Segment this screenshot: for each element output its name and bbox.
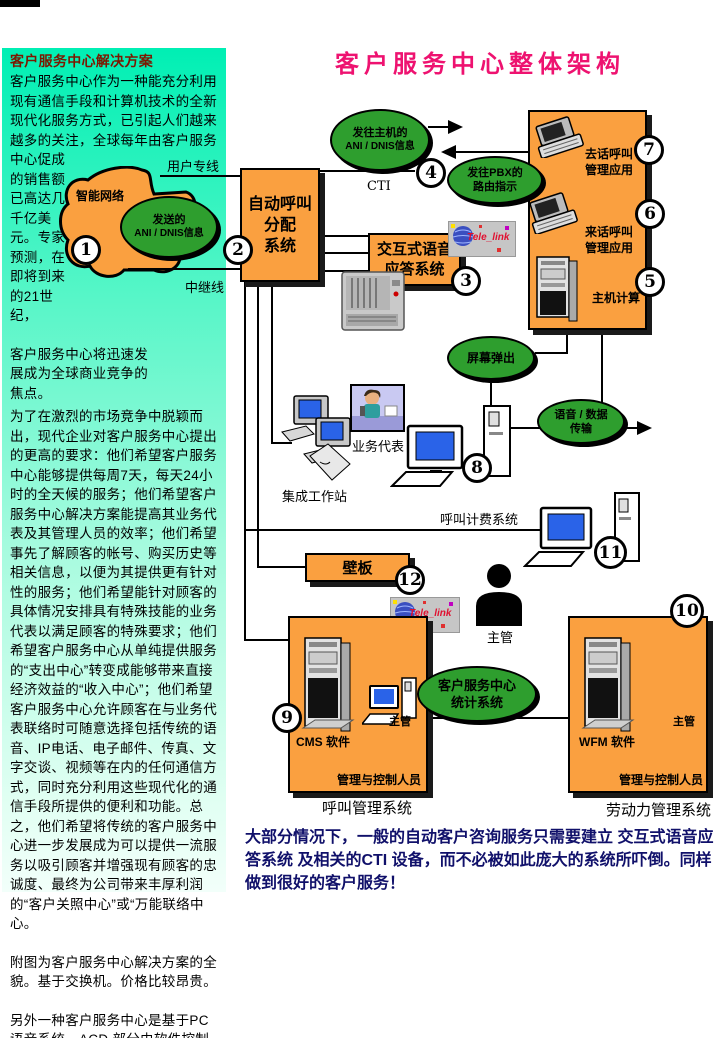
step-circle-2: 2 bbox=[223, 235, 253, 265]
voice-data-oval: 语音 / 数据 传输 bbox=[537, 399, 625, 444]
acd-line3: 系统 bbox=[248, 236, 312, 257]
to-pbx-oval: 发往PBX的 路由指示 bbox=[447, 156, 543, 204]
step-circle-11: 11 bbox=[594, 536, 627, 569]
supervisor-silhouette bbox=[472, 562, 526, 626]
wfm-staff-label: 管理与控制人员 bbox=[619, 772, 703, 788]
step-circle-10: 10 bbox=[670, 594, 704, 628]
step-circle-4: 4 bbox=[416, 158, 446, 188]
arrow-voice-data bbox=[637, 421, 652, 435]
step-circle-5: 5 bbox=[635, 267, 665, 297]
send-ani-oval: 发送的 ANI / DNIS信息 bbox=[120, 196, 218, 258]
sidebar-paragraph-2: 为了在激烈的市场竞争中脱颖而出，现代企业对客户服务中心提出的更高的要求：他们希望… bbox=[10, 407, 218, 934]
sidebar-paragraph-1-cont: 客户服务中心将迅速发展成为全球商业竞争的焦点。 bbox=[10, 345, 160, 404]
step-circle-7: 7 bbox=[634, 135, 664, 165]
cms-software-label: CMS 软件 bbox=[296, 734, 350, 750]
acd-line1: 自动呼叫 bbox=[248, 194, 312, 215]
corner-mark bbox=[0, 0, 40, 7]
to-host-oval: 发往主机的 ANI / DNIS信息 bbox=[330, 109, 430, 171]
ivr-line1: 交互式语音 bbox=[377, 240, 452, 260]
sidebar-heading: 客户服务中心解决方案 bbox=[10, 52, 218, 70]
step-circle-12: 12 bbox=[395, 565, 425, 595]
acd-box: 自动呼叫 分配 系统 bbox=[240, 168, 320, 282]
acd-line2: 分配 bbox=[248, 215, 312, 236]
step-circle-1: 1 bbox=[71, 235, 101, 265]
cms-caption: 呼叫管理系统 bbox=[322, 797, 412, 818]
step-circle-6: 6 bbox=[635, 199, 665, 229]
cti-label: CTI bbox=[367, 179, 391, 194]
cms-supervisor-label: 主管 bbox=[389, 714, 411, 730]
slide: 客户服务中心解决方案 客户服务中心作为一种能充分利用现有通信手段和计算机技术的全… bbox=[0, 0, 719, 1038]
cms-staff-label: 管理与控制人员 bbox=[337, 772, 421, 788]
intelligent-network-label: 智能网络 bbox=[76, 188, 124, 204]
wfm-server-icon bbox=[581, 636, 637, 736]
supervisor-label: 主管 bbox=[487, 627, 513, 646]
wfm-caption: 劳动力管理系统 bbox=[606, 799, 711, 820]
step-circle-9: 9 bbox=[272, 703, 302, 733]
stats-oval: 客户服务中心 统计系统 bbox=[417, 666, 537, 722]
inbound-call-label: 来话呼叫 管理应用 bbox=[585, 224, 633, 256]
host-computing-label: 主机计算 bbox=[592, 290, 640, 306]
wfm-software-label: WFM 软件 bbox=[579, 734, 635, 750]
workstation-icons bbox=[280, 392, 358, 488]
page-title: 客户服务中心整体架构 bbox=[250, 44, 710, 79]
workstation-label: 集成工作站 bbox=[282, 486, 347, 505]
trunk-line-label: 中继线 bbox=[185, 277, 224, 296]
sidebar-paragraph-4: 另外一种客户服务中心是基于PC语音系统，ACD 部分由软件控制语音卡及坐席卡来实… bbox=[10, 1011, 218, 1038]
pbx-switch-icon bbox=[340, 270, 410, 334]
billing-label: 呼叫计费系统 bbox=[440, 509, 518, 528]
footer-note: 大部分情况下，一般的自动客户咨询服务只需要建立 交互式语音应答系统 及相关的CT… bbox=[245, 826, 717, 895]
sidebar-paragraph-3: 附图为客户服务中心解决方案的全貌。基于交换机。价格比较昂贵。 bbox=[10, 953, 218, 992]
cms-server-icon bbox=[301, 636, 357, 736]
arrow-left-from-pbx bbox=[441, 145, 456, 159]
wfm-supervisor-label: 主管 bbox=[673, 714, 695, 730]
step-circle-3: 3 bbox=[451, 266, 481, 296]
phone-icon bbox=[534, 116, 586, 158]
phone-icon bbox=[528, 192, 580, 234]
arrow-right-to-host bbox=[448, 120, 463, 134]
step-circle-8: 8 bbox=[462, 453, 492, 483]
outbound-call-label: 去话呼叫 管理应用 bbox=[585, 146, 633, 178]
user-line-label: 用户专线 bbox=[167, 156, 219, 175]
host-server-icon bbox=[533, 255, 581, 323]
screen-pop-oval: 屏幕弹出 bbox=[447, 336, 535, 380]
telelink-logo: Tele_link bbox=[448, 221, 516, 257]
